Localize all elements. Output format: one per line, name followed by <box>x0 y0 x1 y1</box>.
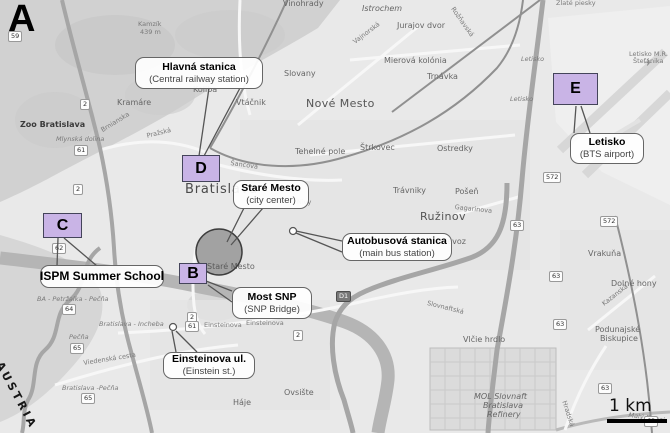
callout-title: Hlavná stanica <box>162 61 236 74</box>
leader-dot-einstein <box>170 324 177 331</box>
callout-title: Einsteinova ul. <box>172 353 246 366</box>
map-marker: D <box>182 155 220 182</box>
leader-line-einstein <box>172 331 197 352</box>
map-marker: C <box>43 213 82 238</box>
callout-title: Autobusová stanica <box>347 235 447 248</box>
callout: ISPM Summer School <box>40 265 164 288</box>
annotation-overlay <box>0 0 670 433</box>
scale-bar-label: 1 km <box>609 396 652 416</box>
panel-label: A <box>8 0 35 38</box>
callout: Autobusová stanica (main bus station) <box>342 233 452 261</box>
callout-subtitle: (main bus station) <box>359 248 435 260</box>
callout: Einsteinova ul. (Einstein st.) <box>163 352 255 379</box>
callout: Staré Mesto (city center) <box>233 180 309 209</box>
leader-line-most <box>206 281 232 302</box>
callout: Hlavná stanica (Central railway station) <box>135 57 263 89</box>
leader-dot-autobus <box>290 228 297 235</box>
callout-title: Most SNP <box>247 291 296 304</box>
callout-subtitle: (BTS airport) <box>580 149 634 161</box>
leader-line-letisko <box>574 106 590 133</box>
callout-title: ISPM Summer School <box>40 269 164 284</box>
callout-title: Staré Mesto <box>241 182 301 195</box>
callout-subtitle: (Central railway station) <box>149 74 249 86</box>
leader-line-autobus <box>296 231 342 252</box>
callout-subtitle: (city center) <box>246 195 296 207</box>
map-figure: Vinohrady Istrochem Jurajov dvor Zlaté p… <box>0 0 670 433</box>
map-marker: E <box>553 73 598 105</box>
leader-line-ispm <box>57 238 97 266</box>
callout-subtitle: (SNP Bridge) <box>244 304 300 316</box>
leader-line-hlavna <box>199 88 240 156</box>
callout: Letisko (BTS airport) <box>570 133 644 164</box>
map-marker: B <box>179 263 207 284</box>
callout-title: Letisko <box>589 136 626 149</box>
scale-bar-line <box>607 419 667 423</box>
callout-subtitle: (Einstein st.) <box>183 366 236 378</box>
callout: Most SNP (SNP Bridge) <box>232 287 312 319</box>
